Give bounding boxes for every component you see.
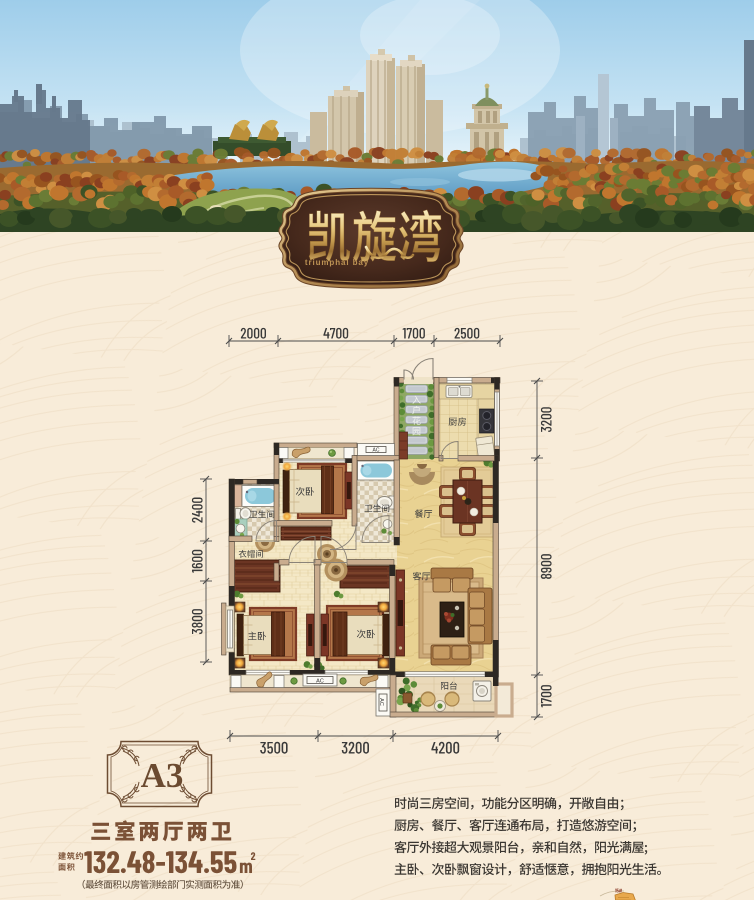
svg-text:AC: AC — [378, 698, 384, 706]
svg-text:AC: AC — [373, 448, 380, 454]
svg-text:triumphal bay: triumphal bay — [305, 258, 369, 267]
svg-text:AC: AC — [316, 679, 324, 685]
svg-text:A3: A3 — [141, 756, 184, 795]
